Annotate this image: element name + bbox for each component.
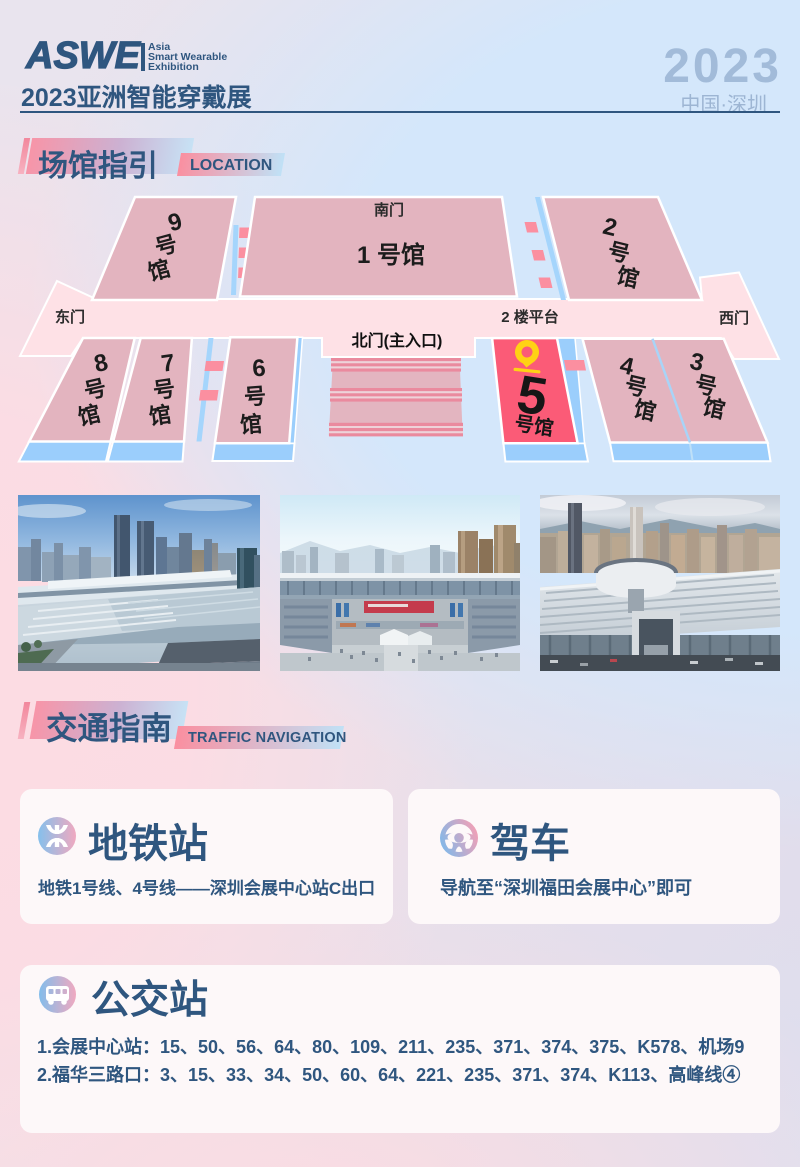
svg-text:号: 号 [151,376,176,404]
svg-text:2 楼平台: 2 楼平台 [501,308,559,326]
svg-text:馆: 馆 [147,402,172,430]
svg-text:北门(主入口): 北门(主入口) [352,331,443,350]
svg-text:6: 6 [251,355,266,383]
svg-text:东门: 东门 [55,308,85,326]
svg-text:馆: 馆 [239,411,263,437]
svg-text:西门: 西门 [719,309,749,327]
svg-text:1 号馆: 1 号馆 [357,241,425,269]
svg-text:南门: 南门 [374,201,404,219]
svg-text:号: 号 [243,383,267,409]
